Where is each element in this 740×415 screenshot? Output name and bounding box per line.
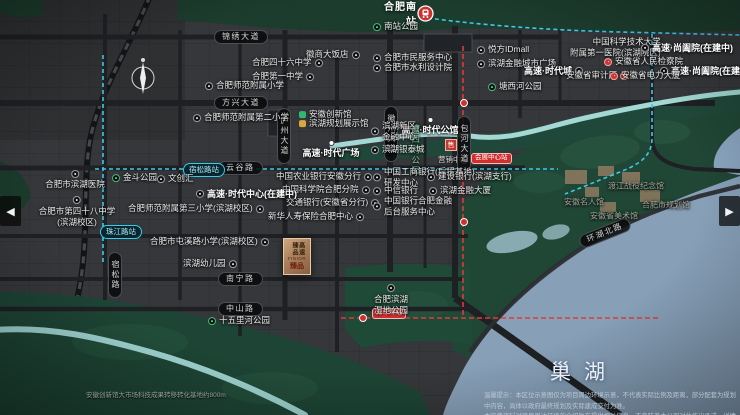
poi-label: 滨湖金融大厦 [429,186,491,196]
label-text: 高速·时代中心(在建中) [207,189,297,199]
train-station-icon [417,5,434,22]
disclaimer-line-1: 温馨提示：本区位示意图仅为项目周边环境示意，不代表实际比例及距离，部分配套为规划… [484,391,736,412]
park-marker-icon [488,83,496,91]
label-text: 滨湖幼儿园 [183,259,226,269]
poi-marker-icon [229,260,237,268]
poi-label: 安徽省电力大厦 [610,71,681,81]
map-labels-layer: 合肥南站 高速臻品 FINIOR 臻品 售 营销中心 巢湖 安徽创新馆大市场科技… [0,0,740,415]
lake-name-label: 巢湖 [550,356,618,386]
label-text: 滨湖金融大厦 [440,186,491,196]
poi-marker-icon [256,205,264,213]
label-text: 安徽省电力大厦 [621,71,681,81]
poi-label: 合肥师范附属第三小学(滨湖校区) [128,204,264,214]
poi-marker-icon [306,73,314,81]
poi-marker-icon [261,238,269,246]
distance-note: 安徽创新馆大市场科技成果转移转化基地约800m [86,389,226,399]
poi-label: 建设银行(滨湖支行) [427,172,512,182]
poi-label: 交通银行(安徽省分行) [286,198,379,208]
park-marker-icon [373,23,381,31]
poi-marker-icon [196,190,204,198]
poi-label: 滨湖新区金融中心 [371,120,416,141]
poi-marker-icon [387,284,395,292]
poi-marker-icon [205,82,213,90]
poi-marker-icon [71,170,79,178]
next-arrow-icon: ▶ [725,205,733,218]
brand-icon [299,111,306,118]
museum-label: 安徽省美术馆 [590,211,638,220]
poi-marker-icon [477,60,485,68]
label-text: 合肥市水利设计院 [384,63,452,73]
park-marker-icon [112,174,120,182]
park-label: 南站公园 [373,22,418,32]
museum-label: 渡江战役纪念馆 [608,181,664,190]
poi-label: 合肥师范附属小学 [205,81,284,91]
prev-arrow-button[interactable]: ◀ [0,196,21,226]
poi-label: 合肥四十六中学 [252,58,323,68]
label-text: 新华人寿保险合肥中心 [268,212,353,222]
disclaimer-text: 温馨提示：本区位示意图仅为项目周边环境示意，不代表实际比例及距离，部分配套为规划… [484,391,736,415]
label-text: 悦方IDmall [488,45,529,55]
poi-label: 合肥师范附属第二小学 [193,113,289,123]
road-label-pill: 锦绣大道 [214,30,268,44]
label-text: 高速·尚阖院(在建中) [652,43,733,53]
poi-marker-icon [641,44,649,52]
sales-office-icon: 售 [445,139,457,151]
park-label: 十五里河公园 [208,316,270,326]
poi-marker-icon [362,186,370,194]
label-text: 合肥市规划馆 [642,200,690,209]
label-text: 合肥师范附属第二小学 [204,113,289,123]
poi-label: 合肥市第四十八中学(滨湖校区) [39,196,116,227]
label-text: 滨湖规划展示馆 [309,119,369,129]
label-text: 安徽省人民检察院 [615,57,683,67]
museum-label: 合肥市规划馆 [642,200,690,209]
project-logo-vertical-text: 高速臻品 [290,242,303,256]
poi-label: 悦方IDmall [477,45,529,55]
poi-marker-icon [364,173,372,181]
poi-marker-icon [157,175,165,183]
label-text: 合肥师范附属小学 [216,81,284,91]
poi-marker-icon [371,146,379,154]
poi-marker-icon [477,46,485,54]
poi-marker-icon [429,187,437,195]
poi-label: 合肥市滨湖医院 [45,170,105,190]
label-text: 合肥滨湖湿地公园 [374,294,408,315]
label-text: 安徽省美术馆 [590,211,638,220]
label-text: 文创汇 [168,174,194,184]
poi-marker-icon [373,173,381,181]
poi-marker-icon [373,187,381,195]
gov-marker-icon [610,72,618,80]
next-arrow-button[interactable]: ▶ [719,196,740,226]
location-map: 合肥南站 高速臻品 FINIOR 臻品 售 营销中心 巢湖 安徽创新馆大市场科技… [0,0,740,415]
poi-marker-icon [373,64,381,72]
brand-icon [299,120,306,127]
poi-label: 合肥市屯溪路小学(滨湖校区) [150,237,269,247]
metro-station-pill: 会展中心站 [471,153,512,164]
gov-marker-icon [604,58,612,66]
poi-marker-icon [315,59,323,67]
label-text: 高速·时代广场 [303,148,360,158]
poi-marker-icon [352,51,360,59]
label-text: 滨湖银泰城 [382,145,425,155]
poi-marker-icon [73,196,81,204]
poi-marker-icon [356,213,364,221]
label-text: 十五里河公园 [219,316,270,326]
museum-label: 安徽名人馆 [564,197,604,206]
poi-marker-icon [373,54,381,62]
label-text: 滨湖新区金融中心 [382,120,416,141]
poi-marker-icon [328,140,334,146]
label-text: 安徽名人馆 [564,197,604,206]
label-text: 合肥市滨湖医院 [45,180,105,190]
project-label: 高速·时代广场 [303,140,360,158]
poi-marker-icon [427,173,435,181]
poi-label: 滨湖银泰城 [371,145,425,155]
poi-label: 中国银行合肥金融后台服务中心 [373,195,452,216]
prev-arrow-icon: ◀ [6,205,14,218]
park-label: 塘西河公园 [488,82,542,92]
label-text: 合肥师范附属第三小学(滨湖校区) [128,204,253,214]
label-text: 交通银行(安徽省分行) [286,198,368,208]
poi-marker-icon [427,117,433,123]
park-label: 金斗公园 [112,173,157,183]
poi-label: 新华人寿保险合肥中心 [268,212,364,222]
road-label-pill: 方兴大道 [214,96,268,110]
brand-label: 滨湖规划展示馆 [299,119,369,129]
road-label-pill: 包河大道 [457,116,471,172]
label-text: 渡江战役纪念馆 [608,181,664,190]
label-text: 建设银行(滨湖支行) [438,172,512,182]
poi-label: 合肥滨湖湿地公园 [374,284,408,315]
poi-marker-icon [373,202,381,210]
project-logo-card: 高速臻品 FINIOR 臻品 [283,238,311,275]
label-text: 中国农业银行安徽分行 [276,172,361,182]
label-text: 塘西河公园 [499,82,542,92]
poi-marker-icon [193,114,201,122]
poi-label: 中国农业银行安徽分行 [276,172,372,182]
label-text: 合肥市第四十八中学(滨湖校区) [39,206,116,227]
label-text: 高速·尚阖院(在建中) [671,66,740,76]
poi-label: 滨湖幼儿园 [183,259,237,269]
park-marker-icon [208,317,216,325]
road-label-pill: 环湖北路 [577,216,632,249]
poi-label: 合肥市水利设计院 [373,63,452,73]
label-text: 合肥四十六中学 [252,58,312,68]
label-text: 金斗公园 [123,173,157,183]
project-logo-cn-text: 臻品 [290,261,304,271]
label-text: 南站公园 [384,22,418,32]
road-label-pill: 中山路 [218,302,263,316]
poi-label: 文创汇 [157,174,194,184]
label-text: 中国银行合肥金融后台服务中心 [384,195,452,216]
label-text: 高速·时代城 [524,66,572,76]
poi-marker-icon [371,127,379,135]
poi-label: 安徽省人民检察院 [604,57,683,67]
project-label: 高速·时代中心(在建中) [196,189,297,199]
label-text: 合肥市屯溪路小学(滨湖校区) [150,237,258,247]
road-label-pill: 南宁路 [218,272,263,286]
project-label: 高速·尚阖院(在建中) [641,43,733,53]
road-label-pill: 宿松路 [108,252,122,298]
